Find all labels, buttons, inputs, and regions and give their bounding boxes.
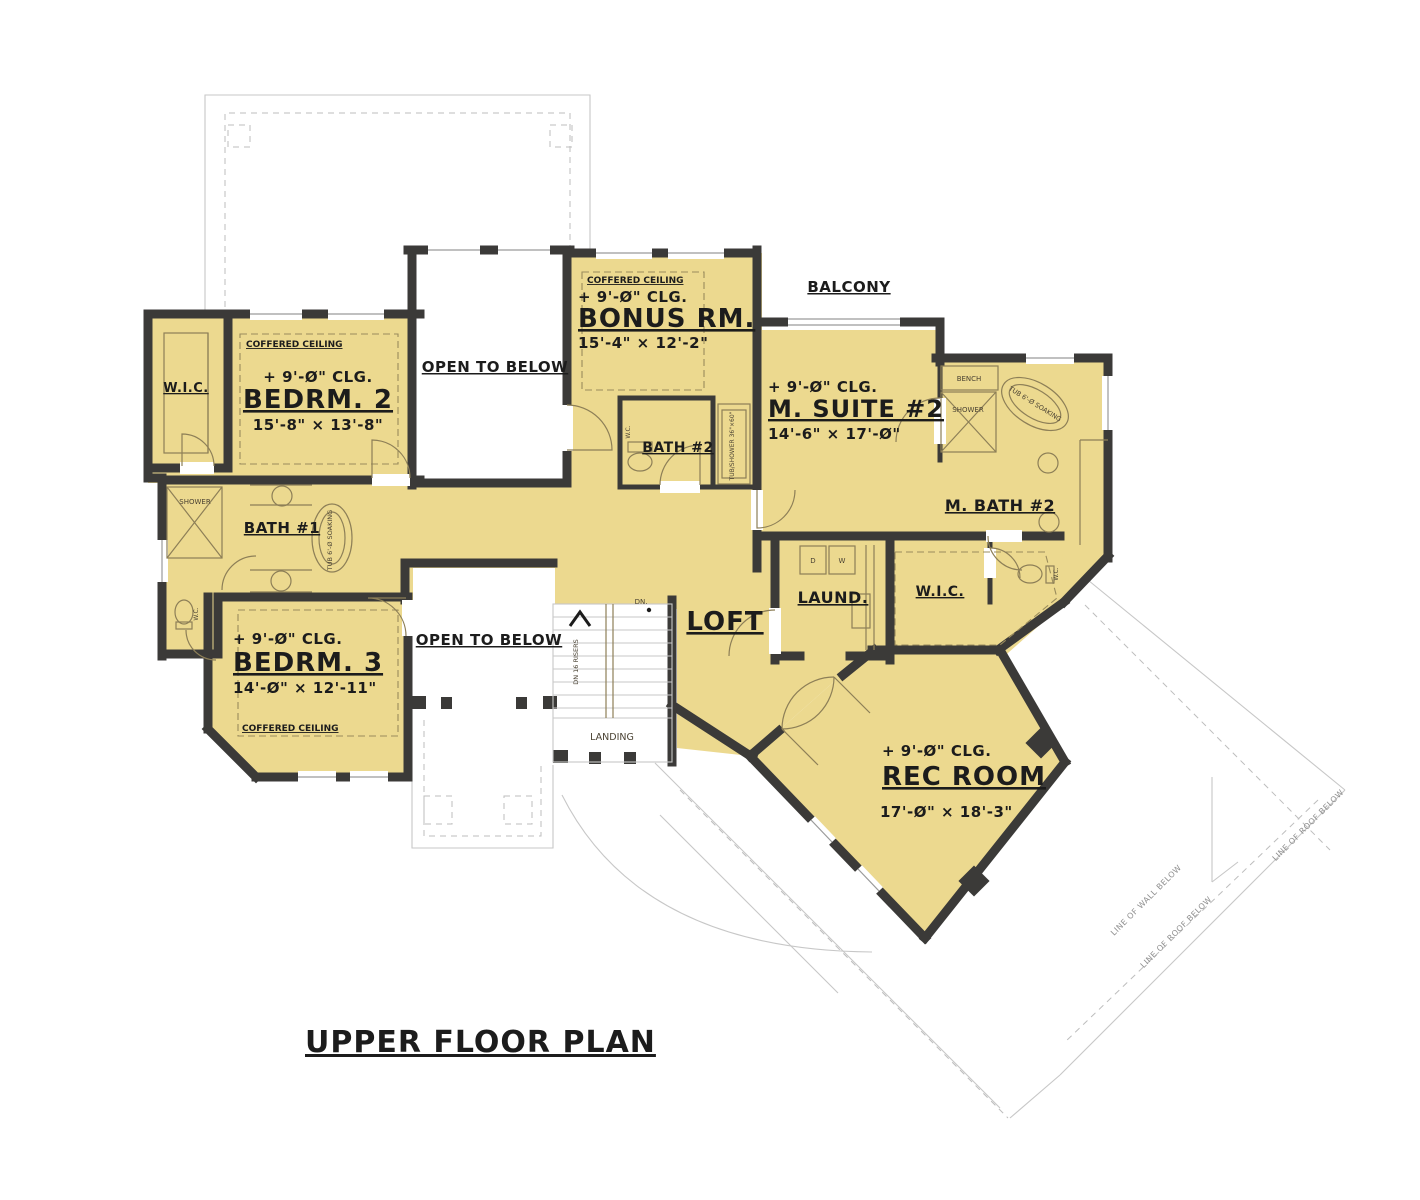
msuite2-dims: 14'-6" × 17'-Ø" xyxy=(768,425,901,443)
laund-label: LAUND. xyxy=(798,588,869,607)
bath1-label: BATH #1 xyxy=(244,519,320,537)
bedrm2-name: BEDRM. 2 xyxy=(243,385,393,415)
dn-label: DN. xyxy=(635,598,648,606)
risers-label: DN 16 RISERS xyxy=(572,639,580,685)
coffered-label-bonus: COFFERED CEILING xyxy=(587,276,684,286)
coffered-label-bedrm2: COFFERED CEILING xyxy=(246,340,343,350)
bath2-wc-label: W.C. xyxy=(625,425,632,438)
line-of-roof-below-label-2: LINE OF ROOF BELOW xyxy=(1271,788,1346,863)
bedrm2-dims: 15'-8" × 13'-8" xyxy=(253,416,383,434)
mbath2-label: M. BATH #2 xyxy=(945,496,1055,515)
bedrm3-clg: + 9'-Ø" CLG. xyxy=(233,630,342,648)
open-below-2-label: OPEN TO BELOW xyxy=(416,631,562,649)
landing-label: LANDING xyxy=(590,732,634,743)
bedrm3-dims: 14'-Ø" × 12'-11" xyxy=(233,679,377,697)
floor-plan-svg: COFFERED CEILING + 9'-Ø" CLG. BEDRM. 2 1… xyxy=(0,0,1420,1200)
mbath2-shower-label: SHOWER xyxy=(952,406,984,414)
msuite2-clg: + 9'-Ø" CLG. xyxy=(768,378,877,396)
bath1-tub-label: TUB 6'-Ø SOAKING xyxy=(326,510,334,571)
page-title: UPPER FLOOR PLAN xyxy=(305,1025,656,1060)
bath1-wc-label: W.C. xyxy=(193,607,200,620)
laund-washer-label: W xyxy=(839,557,846,565)
rec-name: REC ROOM xyxy=(882,762,1046,792)
mbath2-bench-label: BENCH xyxy=(957,375,982,383)
balcony-label: BALCONY xyxy=(807,278,891,296)
loft-label: LOFT xyxy=(686,607,763,637)
bath2-tubshower-label: TUB/SHOWER 36"×60" xyxy=(729,411,736,481)
bedrm3-name: BEDRM. 3 xyxy=(233,648,383,678)
line-of-wall-below-label: LINE OF WALL BELOW xyxy=(1109,863,1183,937)
laund-dryer-label: D xyxy=(810,557,815,565)
bath2-label: BATH #2 xyxy=(642,440,714,456)
mbath2-wc-label: W.C. xyxy=(1053,567,1060,580)
rec-dims: 17'-Ø" × 18'-3" xyxy=(880,803,1013,821)
msuite2-name: M. SUITE #2 xyxy=(768,395,944,423)
bath1-shower-label: SHOWER xyxy=(179,498,211,506)
bonus-name: BONUS RM. xyxy=(578,304,755,334)
wic-right-label: W.I.C. xyxy=(916,584,965,600)
bonus-dims: 15'-4" × 12'-2" xyxy=(578,334,708,352)
rec-clg: + 9'-Ø" CLG. xyxy=(882,742,991,760)
bedrm2-clg: + 9'-Ø" CLG. xyxy=(263,368,372,386)
floor-plan-page: COFFERED CEILING + 9'-Ø" CLG. BEDRM. 2 1… xyxy=(0,0,1420,1200)
coffered-label-bedrm3: COFFERED CEILING xyxy=(242,724,339,734)
wic-left-label: W.I.C. xyxy=(163,381,208,396)
open-below-1-label: OPEN TO BELOW xyxy=(422,358,568,376)
